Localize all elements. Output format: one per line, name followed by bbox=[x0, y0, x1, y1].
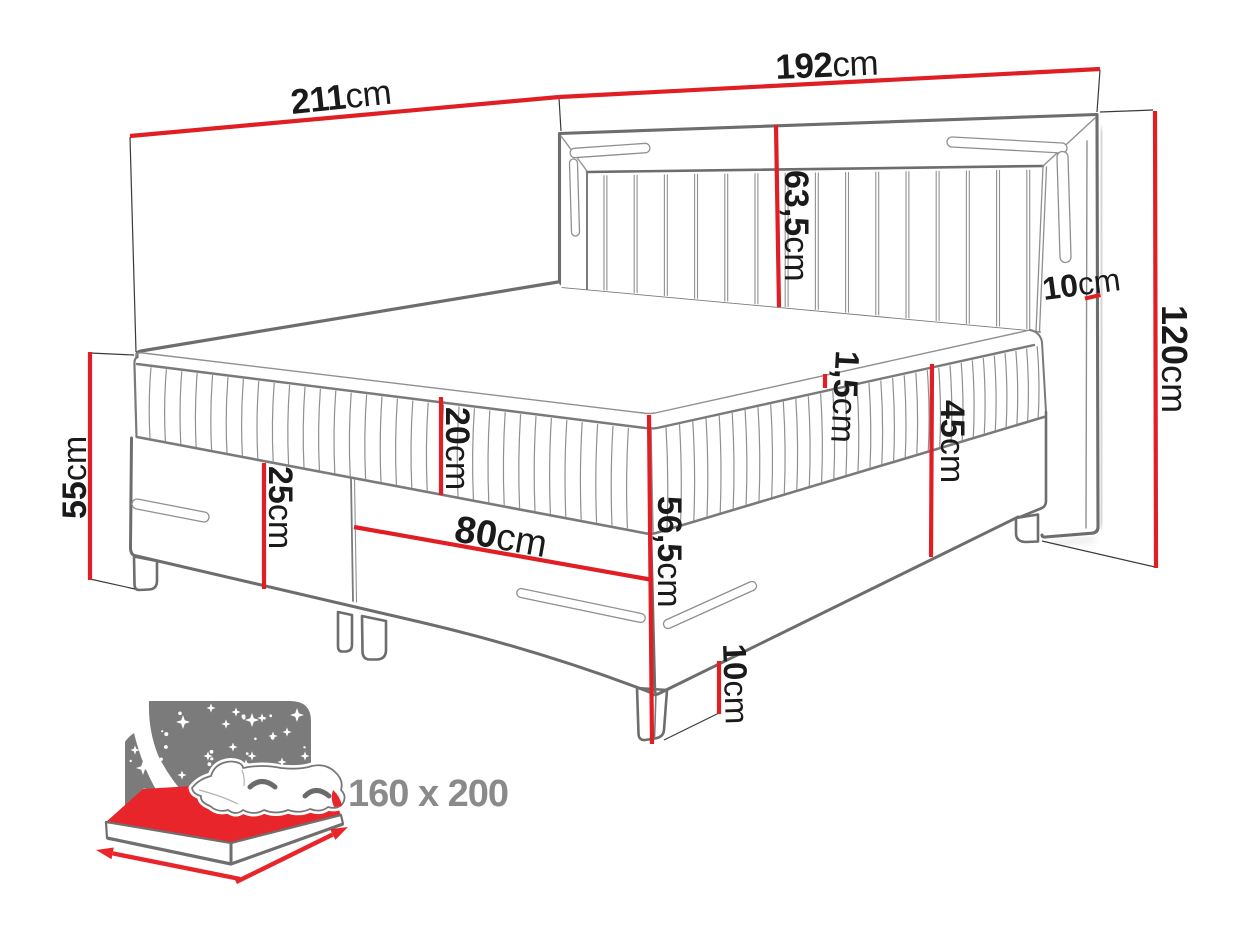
svg-text:45cm: 45cm bbox=[933, 400, 971, 483]
svg-text:25cm: 25cm bbox=[261, 466, 299, 549]
svg-text:10cm: 10cm bbox=[716, 643, 756, 725]
svg-text:160 x 200: 160 x 200 bbox=[348, 773, 508, 815]
svg-text:192cm: 192cm bbox=[775, 44, 879, 87]
svg-text:1,5cm: 1,5cm bbox=[823, 350, 866, 444]
svg-text:20cm: 20cm bbox=[438, 407, 476, 490]
svg-text:55cm: 55cm bbox=[56, 436, 94, 519]
svg-text:63,5cm: 63,5cm bbox=[777, 170, 815, 282]
svg-text:56,5cm: 56,5cm bbox=[650, 496, 688, 608]
svg-text:120cm: 120cm bbox=[1154, 305, 1195, 413]
